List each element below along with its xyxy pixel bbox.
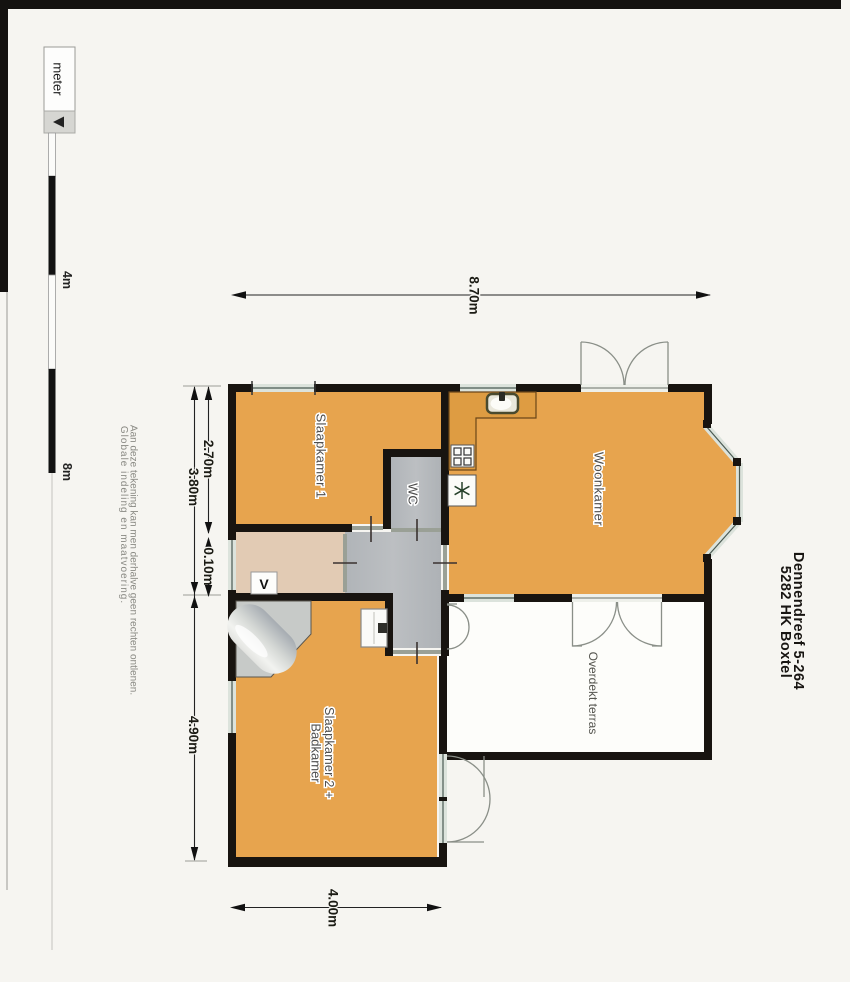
- svg-text:0.10m: 0.10m: [201, 547, 216, 585]
- svg-text:5282 HK Boxtel: 5282 HK Boxtel: [777, 566, 793, 679]
- svg-text:Badkamer: Badkamer: [309, 723, 324, 783]
- svg-text:Aan deze tekening kan men derh: Aan deze tekening kan men derhalve geen …: [128, 425, 139, 695]
- svg-text:Overdekt terras: Overdekt terras: [586, 652, 600, 735]
- svg-text:Slaapkamer 1: Slaapkamer 1: [314, 413, 329, 498]
- svg-text:meter: meter: [51, 62, 66, 96]
- svg-text:3.80m: 3.80m: [186, 468, 201, 506]
- svg-text:4.00m: 4.00m: [326, 889, 341, 927]
- svg-text:4.90m: 4.90m: [186, 716, 201, 754]
- svg-text:8.70m: 8.70m: [467, 276, 482, 314]
- svg-text:4m: 4m: [60, 271, 74, 289]
- svg-text:Woonkamer: Woonkamer: [592, 452, 607, 527]
- svg-text:2.70m: 2.70m: [201, 440, 216, 478]
- svg-text:WC: WC: [406, 483, 421, 505]
- svg-text:8m: 8m: [60, 463, 74, 481]
- svg-text:V: V: [259, 576, 269, 592]
- svg-text:Globale indeling en maatvoerin: Globale indeling en maatvoering.: [118, 426, 129, 604]
